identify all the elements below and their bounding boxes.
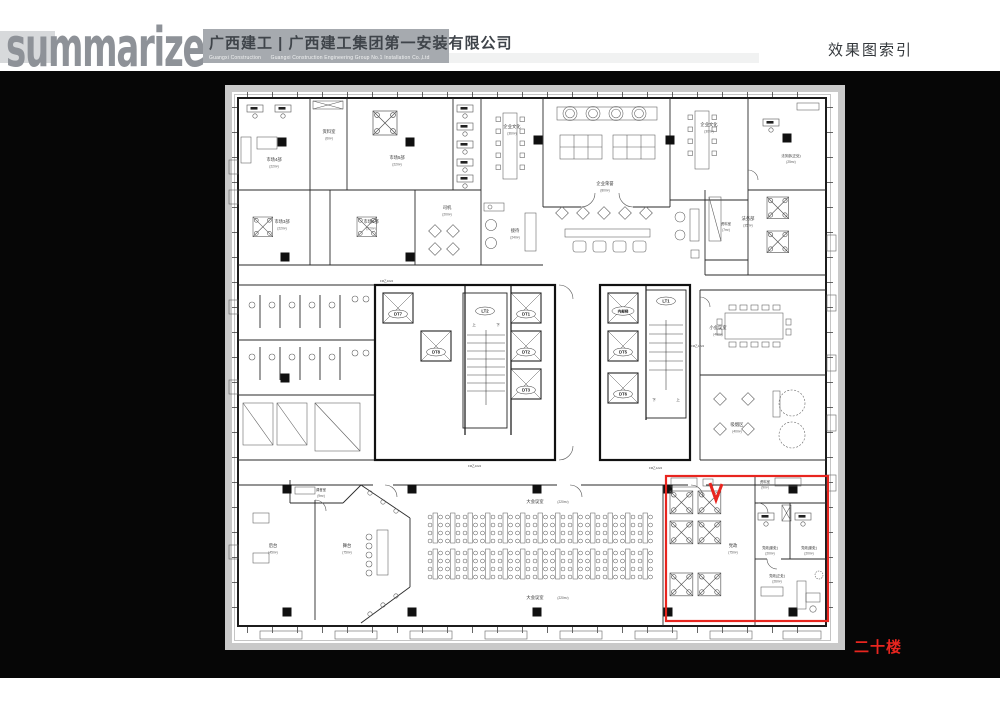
room-area-xiyan: (40m²): [732, 430, 741, 434]
room-label-qywh-right: 企业文化: [700, 121, 718, 128]
room-label-houtai: 后台: [269, 542, 278, 549]
stair-label-lt1: LT1: [662, 299, 670, 304]
room-area-ziliao2: (7m²): [722, 228, 730, 232]
stair-up-label: 上: [472, 322, 476, 327]
room-label-ziliao2: 资料室: [721, 221, 732, 226]
room-area-fawu-zheng: (25m²): [786, 160, 795, 164]
room-label-fawu: 法务部: [742, 215, 756, 222]
room-label-shichang4: 市场4部: [266, 156, 282, 163]
room-area-dangzheng: (75m²): [728, 551, 737, 555]
lift-label-dt2: DT2: [522, 350, 531, 355]
room-area-siji: (20m²): [442, 213, 451, 217]
room-label-dz-fu2: 党政(副处): [801, 545, 817, 550]
room-label-dz-fu: 党政(副处): [762, 545, 778, 550]
room-label-tiaoyin: 调音室: [316, 487, 327, 492]
lift-label-dt3: DT3: [522, 388, 531, 393]
room-area-qyry: (80m²): [600, 189, 609, 193]
stair-down-label: 下: [652, 398, 656, 402]
room-label-ziliao3: 资料室: [760, 479, 771, 484]
room-area-qywh-left: (36m²): [507, 132, 516, 136]
room-label-xiaohys: 小会议室: [709, 324, 727, 331]
room-area-qywh-right: (30m²): [704, 130, 713, 134]
room-area-tiaoyin: (9m²): [317, 494, 325, 498]
room-area-shichang4: (22m²): [269, 165, 278, 169]
company-logo: summarize: [6, 21, 204, 75]
room-area-shichang3: (22m²): [277, 227, 286, 231]
room-label-shichang5: 市场5部: [389, 154, 405, 161]
room-area-shichang5: (22m²): [392, 163, 401, 167]
lift-label-dt5: DT5: [619, 350, 628, 355]
room-label-qyry: 企业荣誉: [596, 180, 614, 187]
room-area-ziliao3: (9m²): [761, 486, 769, 490]
room-label-dahys: 大会议室: [526, 498, 544, 505]
lift-label-dt1: DT1: [522, 312, 531, 317]
room-area-dz-fu2: (20m²): [804, 552, 813, 556]
room-area-shichang6: (22m²): [366, 227, 375, 231]
room-area-dahys: (220m²): [557, 500, 568, 504]
floor-label: 二十楼: [854, 636, 902, 657]
company-name-block: 广西建工 | 广西建工集团第一安装有限公司 Guangxi Constructi…: [203, 29, 449, 63]
room-label-jiedai: 接待: [511, 227, 520, 234]
header-divider-strip: [449, 53, 759, 63]
plan-sheet: DT7 DT8 DT1 DT2 DT3 内部梯 DT5 DT6 LT2 LT1: [225, 85, 845, 650]
door-label-fm1024: FM乙1024: [468, 464, 482, 468]
room-area-fawu: (35m²): [743, 224, 752, 228]
room-label-xiyan: 吸烟区: [731, 421, 745, 428]
door-label-fm1224: FM乙1224: [691, 344, 705, 348]
page-header: summarize 广西建工 | 广西建工集团第一安装有限公司 Guangxi …: [0, 0, 1000, 71]
room-label-qywh-left: 企业文化: [503, 123, 521, 130]
room-label-shichang6: 市场6部: [363, 218, 379, 225]
room-area-xiaohys: (40m²): [713, 333, 722, 337]
lift-label-neibuti: 内部梯: [618, 309, 629, 314]
stair-label-lt2: LT2: [481, 309, 489, 314]
room-area-dz-fu: (20m²): [765, 552, 774, 556]
room-label-ziliao1: 资料室: [323, 128, 337, 135]
door-label-fm1224: FM乙1224: [649, 466, 663, 470]
room-area-dahys: (220m²): [557, 596, 568, 600]
stair-up-label: 上: [676, 397, 680, 402]
room-label-shichang3: 市场3部: [274, 218, 290, 225]
company-name-cn: 广西建工 | 广西建工集团第一安装有限公司: [203, 29, 449, 53]
room-label-dangzheng: 党政: [729, 542, 738, 549]
room-label-dz-zheng: 党政(正处): [769, 573, 785, 578]
plan-background: DT7 DT8 DT1 DT2 DT3 内部梯 DT5 DT6 LT2 LT1: [0, 71, 1000, 678]
lift-label-dt6: DT6: [619, 392, 628, 397]
room-area-dz-zheng: (26m²): [772, 580, 781, 584]
room-label-wutai: 舞台: [343, 542, 352, 549]
stair-down-label: 下: [496, 323, 500, 327]
room-area-wutai: (75m²): [342, 551, 351, 555]
room-area-houtai: (45m²): [268, 551, 277, 555]
room-label-dahys: 大会议室: [526, 594, 544, 601]
page-title: 效果图索引: [828, 39, 913, 60]
room-area-ziliao1: (6m²): [325, 137, 333, 141]
floor-plan-svg: DT7 DT8 DT1 DT2 DT3 内部梯 DT5 DT6 LT2 LT1: [225, 85, 845, 650]
door-label-fm1024: FM乙1024: [380, 279, 394, 283]
room-label-siji: 司机: [443, 204, 452, 211]
room-area-jiedai: (24m²): [510, 236, 519, 240]
room-label-fawu-zheng: 法务部(正处): [781, 153, 800, 158]
company-name-en: Guangxi Construction Guangxi Constructio…: [203, 53, 449, 61]
lift-label-dt8: DT8: [432, 350, 441, 355]
lift-label-dt7: DT7: [394, 312, 403, 317]
